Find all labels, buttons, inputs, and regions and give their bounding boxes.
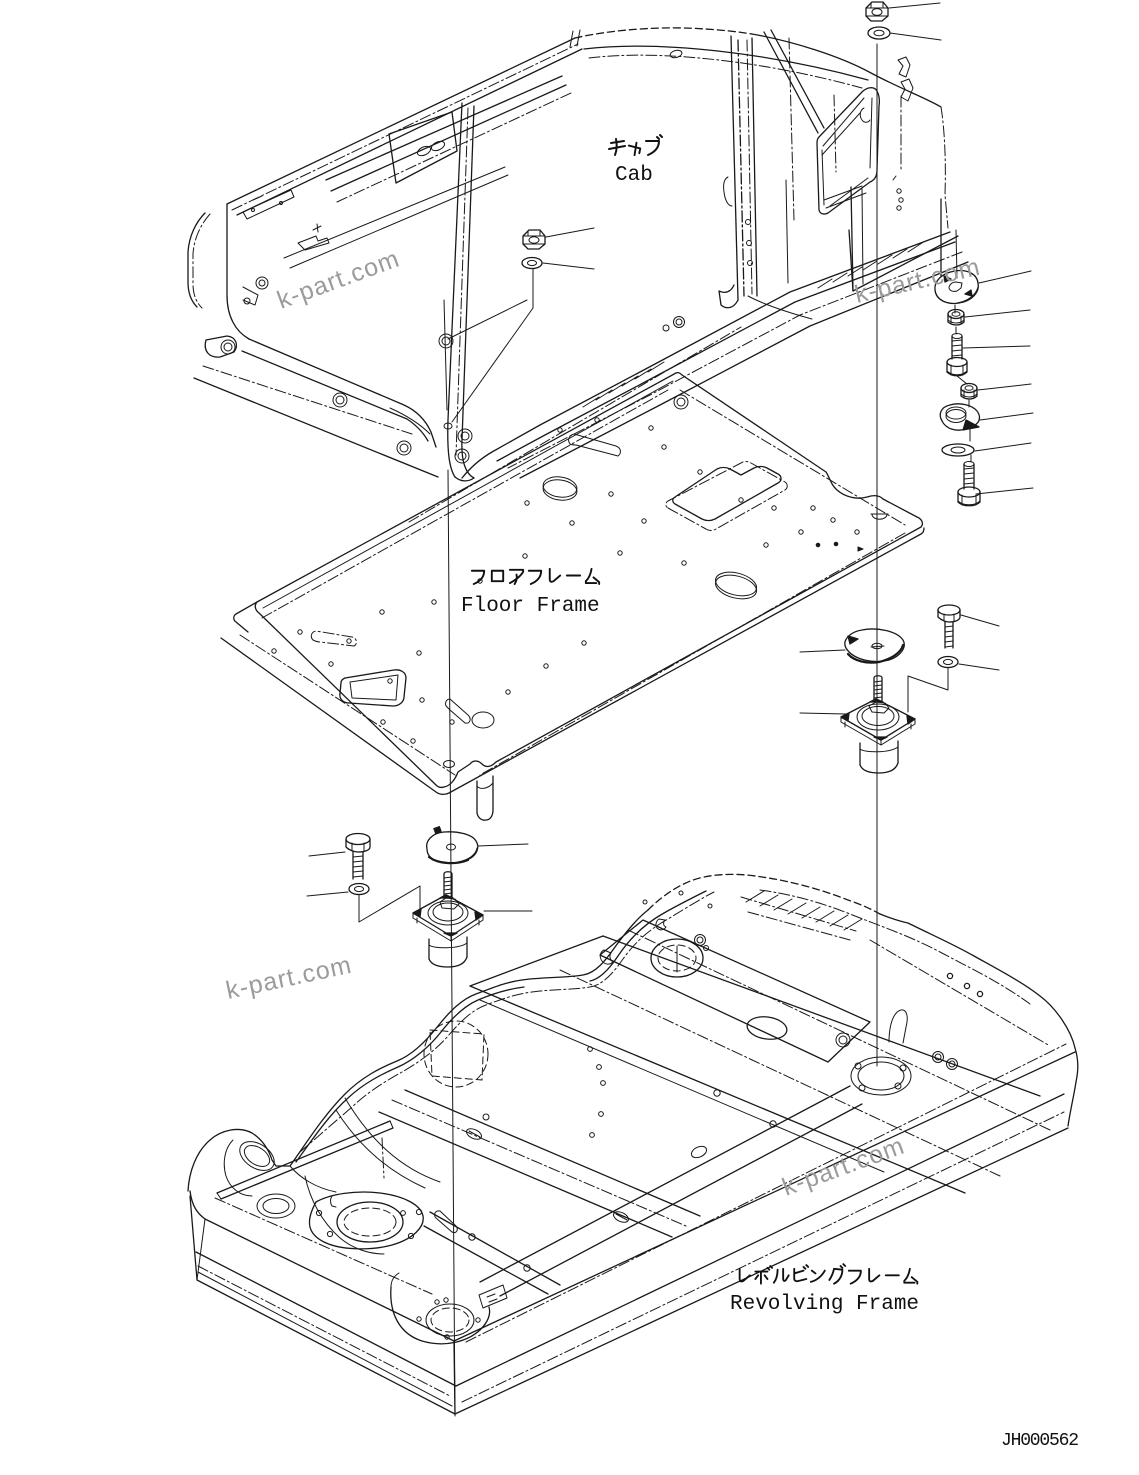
svg-text:JH000562: JH000562 [1001,1431,1078,1451]
svg-text:Floor Frame: Floor Frame [461,595,600,618]
svg-text:Revolving Frame: Revolving Frame [730,1293,919,1316]
svg-text:Cab: Cab [615,164,653,187]
